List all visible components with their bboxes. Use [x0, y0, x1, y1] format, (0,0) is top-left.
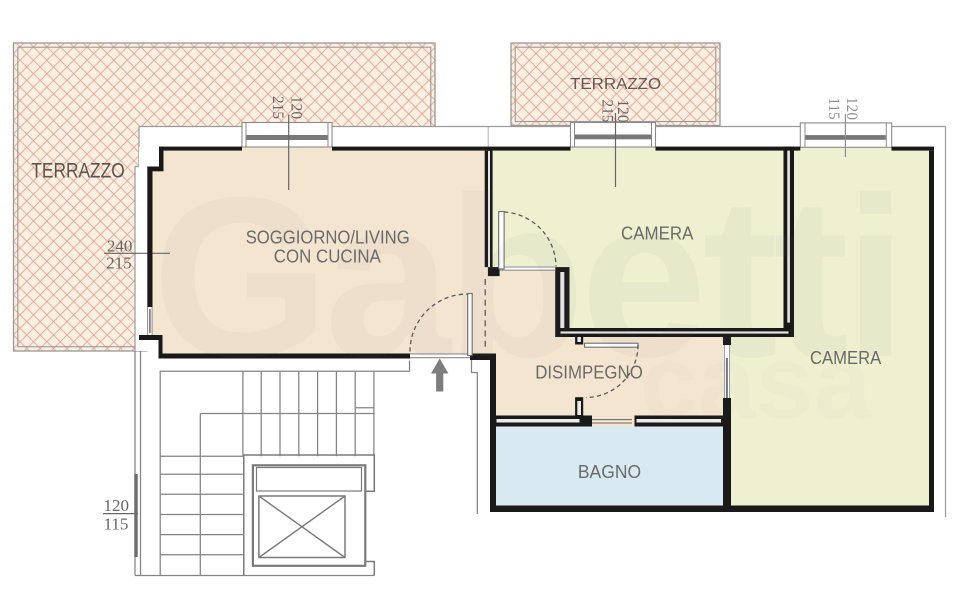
- svg-text:120: 120: [614, 100, 631, 123]
- svg-text:TERRAZZO: TERRAZZO: [31, 160, 124, 183]
- svg-text:115: 115: [104, 515, 129, 534]
- svg-text:TERRAZZO: TERRAZZO: [570, 76, 661, 93]
- svg-text:115: 115: [825, 97, 842, 120]
- svg-text:120: 120: [103, 496, 129, 515]
- svg-text:215: 215: [269, 96, 286, 119]
- svg-text:120: 120: [287, 96, 304, 119]
- svg-text:BAGNO: BAGNO: [578, 462, 641, 482]
- svg-text:215: 215: [599, 100, 616, 123]
- svg-text:215: 215: [106, 253, 132, 272]
- svg-text:casa: casa: [640, 325, 873, 441]
- svg-text:120: 120: [843, 97, 860, 120]
